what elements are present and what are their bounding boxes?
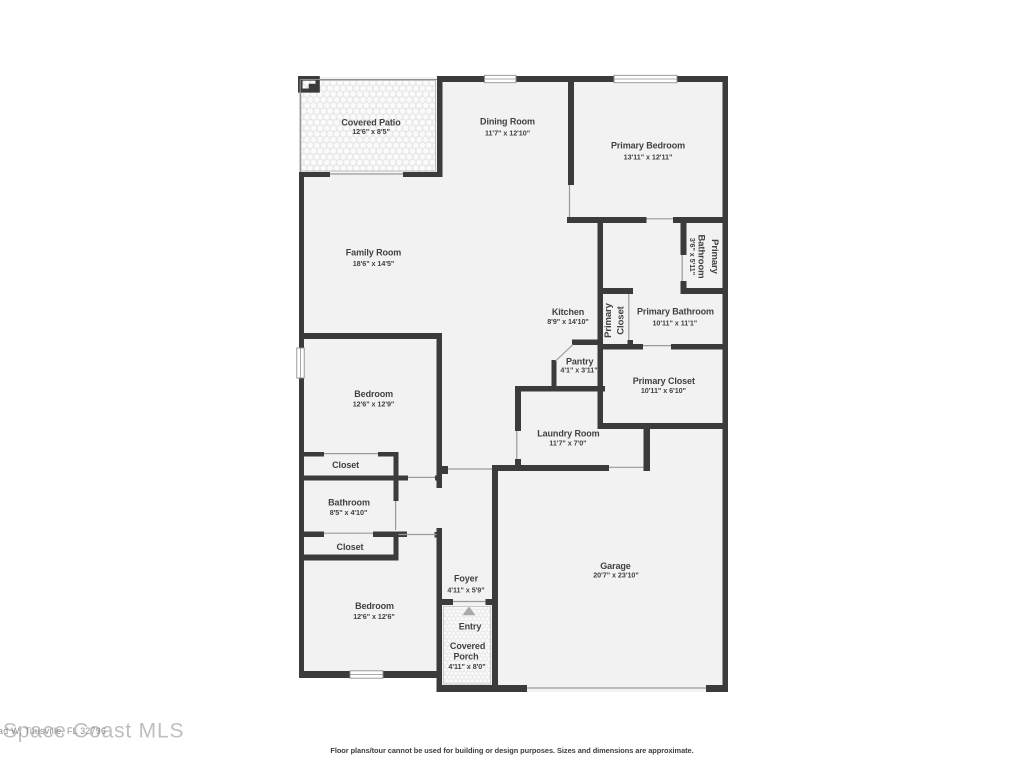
svg-text:8'9" x 14'10": 8'9" x 14'10" — [547, 317, 589, 326]
svg-text:10'11" x 6'10": 10'11" x 6'10" — [641, 386, 686, 395]
svg-text:Bathroom: Bathroom — [328, 497, 370, 507]
svg-text:Primary: Primary — [709, 239, 720, 275]
svg-text:13'11" x 12'11": 13'11" x 12'11" — [624, 152, 673, 161]
svg-text:4'1" x 3'11": 4'1" x 3'11" — [560, 365, 597, 374]
svg-text:Closet: Closet — [332, 460, 359, 470]
svg-text:Kitchen: Kitchen — [552, 307, 584, 317]
svg-text:3'6" x 5'11": 3'6" x 5'11" — [688, 238, 697, 275]
svg-text:Closet: Closet — [337, 542, 364, 552]
svg-text:12'6" x 12'9": 12'6" x 12'9" — [353, 400, 395, 409]
svg-text:Primary: Primary — [603, 302, 614, 338]
svg-text:Foyer: Foyer — [454, 573, 479, 583]
svg-text:Garage: Garage — [600, 561, 631, 571]
svg-text:18'6" x 14'5": 18'6" x 14'5" — [353, 259, 395, 268]
svg-text:Floor plans/tour cannot be use: Floor plans/tour cannot be used for buil… — [330, 746, 693, 755]
svg-text:11'7" x 7'0": 11'7" x 7'0" — [549, 438, 586, 447]
svg-text:Primary Bedroom: Primary Bedroom — [611, 141, 685, 151]
svg-text:Closet: Closet — [615, 305, 626, 334]
svg-text:4'11" x 8'0": 4'11" x 8'0" — [448, 662, 485, 671]
svg-text:8'5" x 4'10": 8'5" x 4'10" — [330, 508, 368, 517]
svg-text:Family Room: Family Room — [346, 247, 402, 257]
svg-text:12'6" x 12'6": 12'6" x 12'6" — [353, 612, 395, 621]
svg-text:Entry: Entry — [459, 622, 482, 632]
svg-text:Laundry Room: Laundry Room — [537, 428, 599, 438]
svg-text:Primary Closet: Primary Closet — [633, 376, 695, 386]
svg-text:Dining Room: Dining Room — [480, 117, 535, 127]
svg-text:Covered: Covered — [450, 641, 485, 651]
svg-text:4'11" x 5'9": 4'11" x 5'9" — [447, 586, 484, 595]
svg-text:Bedroom: Bedroom — [354, 389, 393, 399]
svg-text:ad W, Titusville, FL 32796: ad W, Titusville, FL 32796 — [0, 726, 106, 736]
svg-text:10'11" x 11'1": 10'11" x 11'1" — [652, 319, 697, 328]
svg-text:20'7" x 23'10": 20'7" x 23'10" — [593, 571, 639, 580]
svg-text:Porch: Porch — [453, 651, 478, 661]
svg-text:12'6" x 8'5": 12'6" x 8'5" — [352, 127, 390, 136]
svg-text:Bedroom: Bedroom — [355, 601, 394, 611]
svg-text:11'7" x 12'10": 11'7" x 12'10" — [485, 129, 530, 138]
svg-text:Primary Bathroom: Primary Bathroom — [637, 306, 714, 316]
svg-text:Covered Patio: Covered Patio — [341, 117, 401, 127]
